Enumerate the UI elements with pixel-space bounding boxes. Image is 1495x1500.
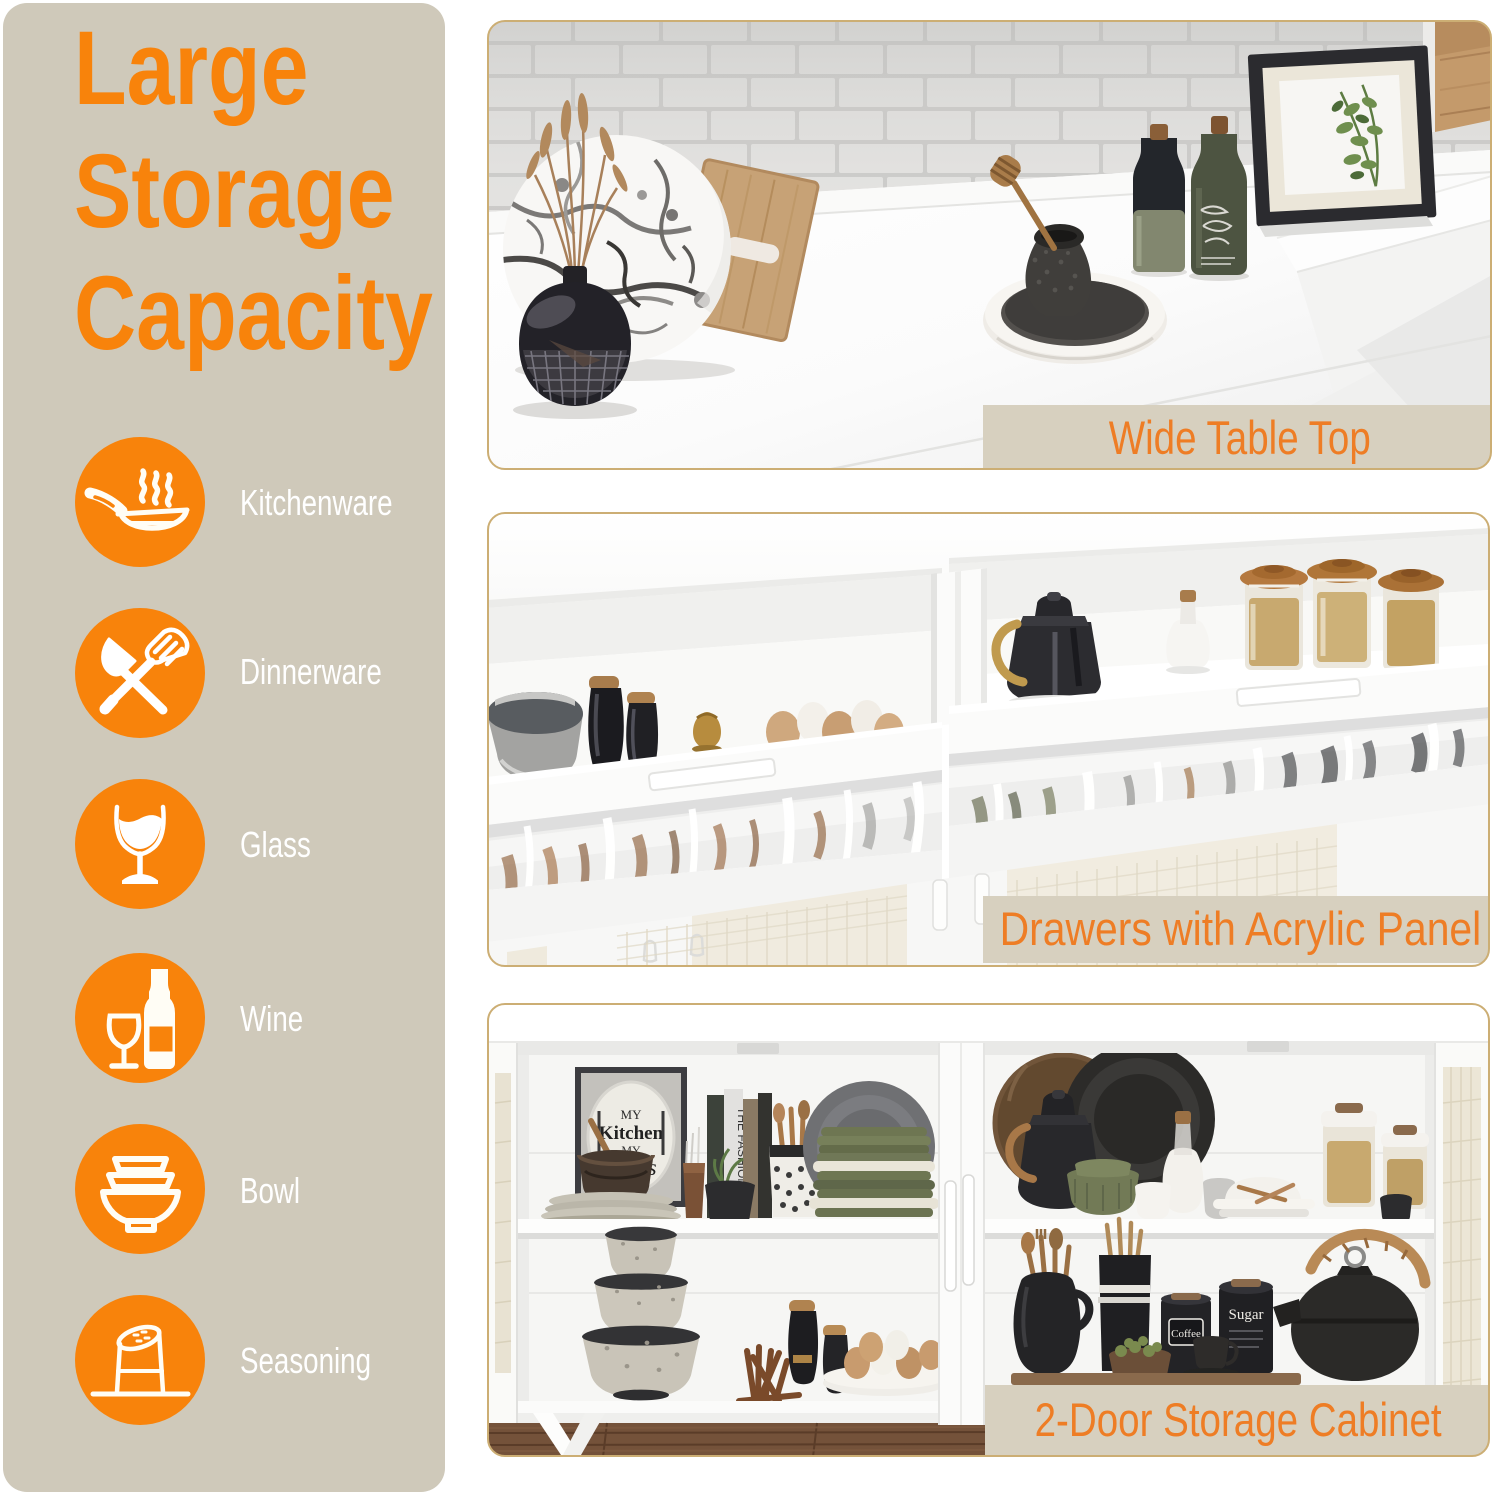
- svg-text:2-Door Storage Cabinet: 2-Door Storage Cabinet: [1035, 1394, 1442, 1446]
- svg-text:MY: MY: [621, 1107, 643, 1122]
- svg-text:Wide Table Top: Wide Table Top: [1109, 412, 1371, 464]
- svg-text:Drawers with Acrylic Panel: Drawers with Acrylic Panel: [1000, 903, 1482, 955]
- svg-text:Kitchen: Kitchen: [599, 1123, 664, 1144]
- svg-text:Sugar: Sugar: [1229, 1307, 1264, 1323]
